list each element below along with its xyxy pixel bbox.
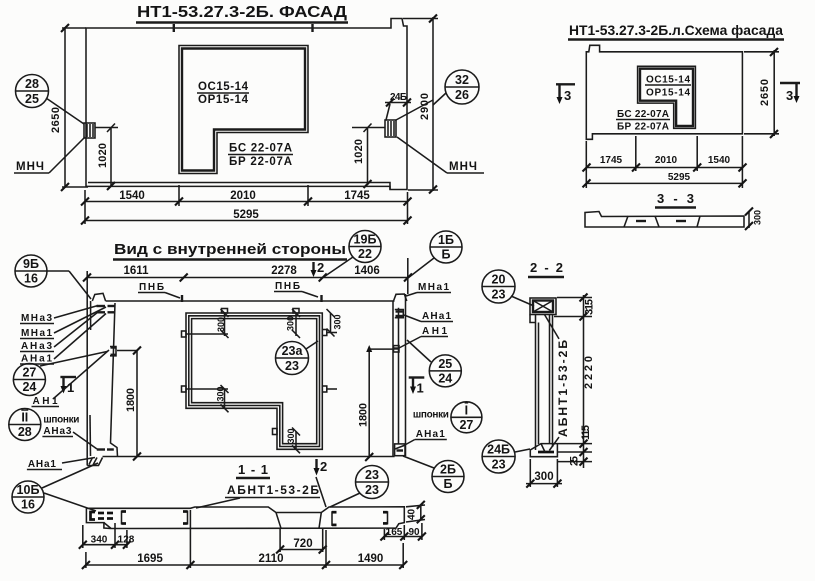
svg-text:Б: Б <box>444 477 453 491</box>
svg-text:2: 2 <box>320 459 327 474</box>
svg-text:ОР15-14: ОР15-14 <box>646 88 690 99</box>
svg-text:24Б: 24Б <box>487 443 510 457</box>
svg-text:1: 1 <box>417 381 424 396</box>
svg-text:АНа1: АНа1 <box>422 311 451 322</box>
svg-text:720: 720 <box>293 538 312 550</box>
svg-text:25: 25 <box>569 456 581 466</box>
svg-text:1Б: 1Б <box>438 233 454 247</box>
svg-text:3: 3 <box>564 88 571 103</box>
svg-text:1611: 1611 <box>124 265 150 277</box>
svg-text:24: 24 <box>22 380 36 394</box>
svg-text:300: 300 <box>216 386 226 401</box>
svg-text:1020: 1020 <box>97 143 109 168</box>
svg-text:23: 23 <box>492 288 506 302</box>
svg-text:2: 2 <box>317 260 324 275</box>
svg-text:МНЧ: МНЧ <box>449 161 477 173</box>
svg-text:27: 27 <box>459 418 473 432</box>
svg-text:ОР15-14: ОР15-14 <box>198 94 249 106</box>
svg-text:2650: 2650 <box>759 79 771 106</box>
svg-text:16: 16 <box>24 272 38 286</box>
svg-text:300: 300 <box>333 314 343 329</box>
svg-text:1 - 1: 1 - 1 <box>238 462 268 477</box>
svg-text:1540: 1540 <box>119 190 145 202</box>
svg-text:НТ1-53.27.3-2Б.л.Схема фасада: НТ1-53.27.3-2Б.л.Схема фасада <box>569 23 783 38</box>
svg-text:шпонки: шпонки <box>413 410 449 421</box>
svg-text:2 - 2: 2 - 2 <box>530 260 563 275</box>
svg-text:5295: 5295 <box>233 209 259 221</box>
svg-text:ПНБ: ПНБ <box>275 281 300 292</box>
svg-text:АНа1: АНа1 <box>416 429 445 440</box>
svg-text:90: 90 <box>408 527 420 538</box>
svg-text:АНа3: АНа3 <box>43 426 71 437</box>
svg-text:128: 128 <box>118 535 135 546</box>
svg-text:10Б: 10Б <box>17 483 40 497</box>
svg-text:2Б: 2Б <box>440 463 456 477</box>
svg-text:I: I <box>465 403 468 417</box>
svg-text:23: 23 <box>365 468 379 482</box>
svg-text:16: 16 <box>21 498 35 512</box>
svg-text:БС 22-07А: БС 22-07А <box>617 109 669 120</box>
svg-text:МНа3: МНа3 <box>21 313 52 324</box>
svg-text:25: 25 <box>25 92 39 106</box>
svg-text:9Б: 9Б <box>23 257 39 271</box>
svg-text:32: 32 <box>455 73 469 87</box>
svg-text:Вид с внутренней стороны: Вид с внутренней стороны <box>114 241 346 258</box>
svg-text:МНа1: МНа1 <box>418 282 449 293</box>
svg-text:300: 300 <box>286 428 296 443</box>
svg-text:1800: 1800 <box>125 388 137 412</box>
svg-text:2010: 2010 <box>655 155 678 166</box>
svg-text:25: 25 <box>438 357 452 371</box>
svg-text:300: 300 <box>534 471 553 483</box>
svg-text:23: 23 <box>492 458 506 472</box>
svg-text:ОС15-14: ОС15-14 <box>646 75 690 86</box>
svg-text:АНа1: АНа1 <box>21 354 52 365</box>
svg-text:МНа1: МНа1 <box>21 328 52 339</box>
svg-text:II: II <box>21 411 28 425</box>
svg-text:40: 40 <box>407 508 418 520</box>
svg-text:АНа1: АНа1 <box>28 459 56 470</box>
svg-text:28: 28 <box>18 425 32 439</box>
svg-text:315: 315 <box>584 299 596 315</box>
svg-text:28: 28 <box>25 77 39 91</box>
svg-text:165: 165 <box>386 527 403 538</box>
svg-text:22: 22 <box>358 247 372 261</box>
svg-text:1406: 1406 <box>354 265 380 277</box>
svg-text:300: 300 <box>286 316 296 331</box>
svg-text:23: 23 <box>285 359 299 373</box>
svg-text:МНЧ: МНЧ <box>16 161 44 173</box>
svg-text:1540: 1540 <box>708 155 731 166</box>
svg-text:115: 115 <box>580 425 592 440</box>
svg-text:АН1: АН1 <box>422 326 447 337</box>
svg-text:23: 23 <box>365 483 379 497</box>
svg-text:300: 300 <box>216 317 226 332</box>
svg-text:1695: 1695 <box>137 553 163 565</box>
svg-text:1490: 1490 <box>358 553 384 565</box>
svg-text:24: 24 <box>438 371 452 385</box>
svg-text:1745: 1745 <box>344 190 370 202</box>
svg-text:20: 20 <box>492 273 506 287</box>
svg-text:ОС15-14: ОС15-14 <box>198 81 249 93</box>
svg-text:ПНБ: ПНБ <box>139 282 164 293</box>
svg-text:АНа3: АНа3 <box>21 341 52 352</box>
svg-text:1800: 1800 <box>358 403 370 427</box>
svg-text:5295: 5295 <box>668 172 691 183</box>
svg-text:БС 22-07А: БС 22-07А <box>229 143 292 155</box>
svg-text:шпонки: шпонки <box>43 415 79 426</box>
svg-text:1745: 1745 <box>600 155 623 166</box>
svg-text:300: 300 <box>753 210 763 225</box>
svg-text:БР 22-07А: БР 22-07А <box>617 122 669 133</box>
svg-text:3 - 3: 3 - 3 <box>657 191 694 206</box>
svg-text:340: 340 <box>91 535 108 546</box>
svg-text:2110: 2110 <box>259 553 284 565</box>
svg-text:27: 27 <box>22 366 36 380</box>
svg-text:2650: 2650 <box>50 107 62 133</box>
svg-text:23а: 23а <box>282 344 304 358</box>
svg-text:2010: 2010 <box>230 190 256 202</box>
svg-text:Б: Б <box>442 248 451 262</box>
svg-text:БР 22-07А: БР 22-07А <box>229 156 292 168</box>
svg-text:НТ1-53.27.3-2Б. ФАСАД: НТ1-53.27.3-2Б. ФАСАД <box>137 4 348 21</box>
svg-text:1020: 1020 <box>353 139 365 164</box>
svg-text:26: 26 <box>455 88 469 102</box>
svg-text:3: 3 <box>786 88 793 103</box>
svg-text:2278: 2278 <box>271 265 297 277</box>
svg-text:19Б: 19Б <box>354 233 377 247</box>
